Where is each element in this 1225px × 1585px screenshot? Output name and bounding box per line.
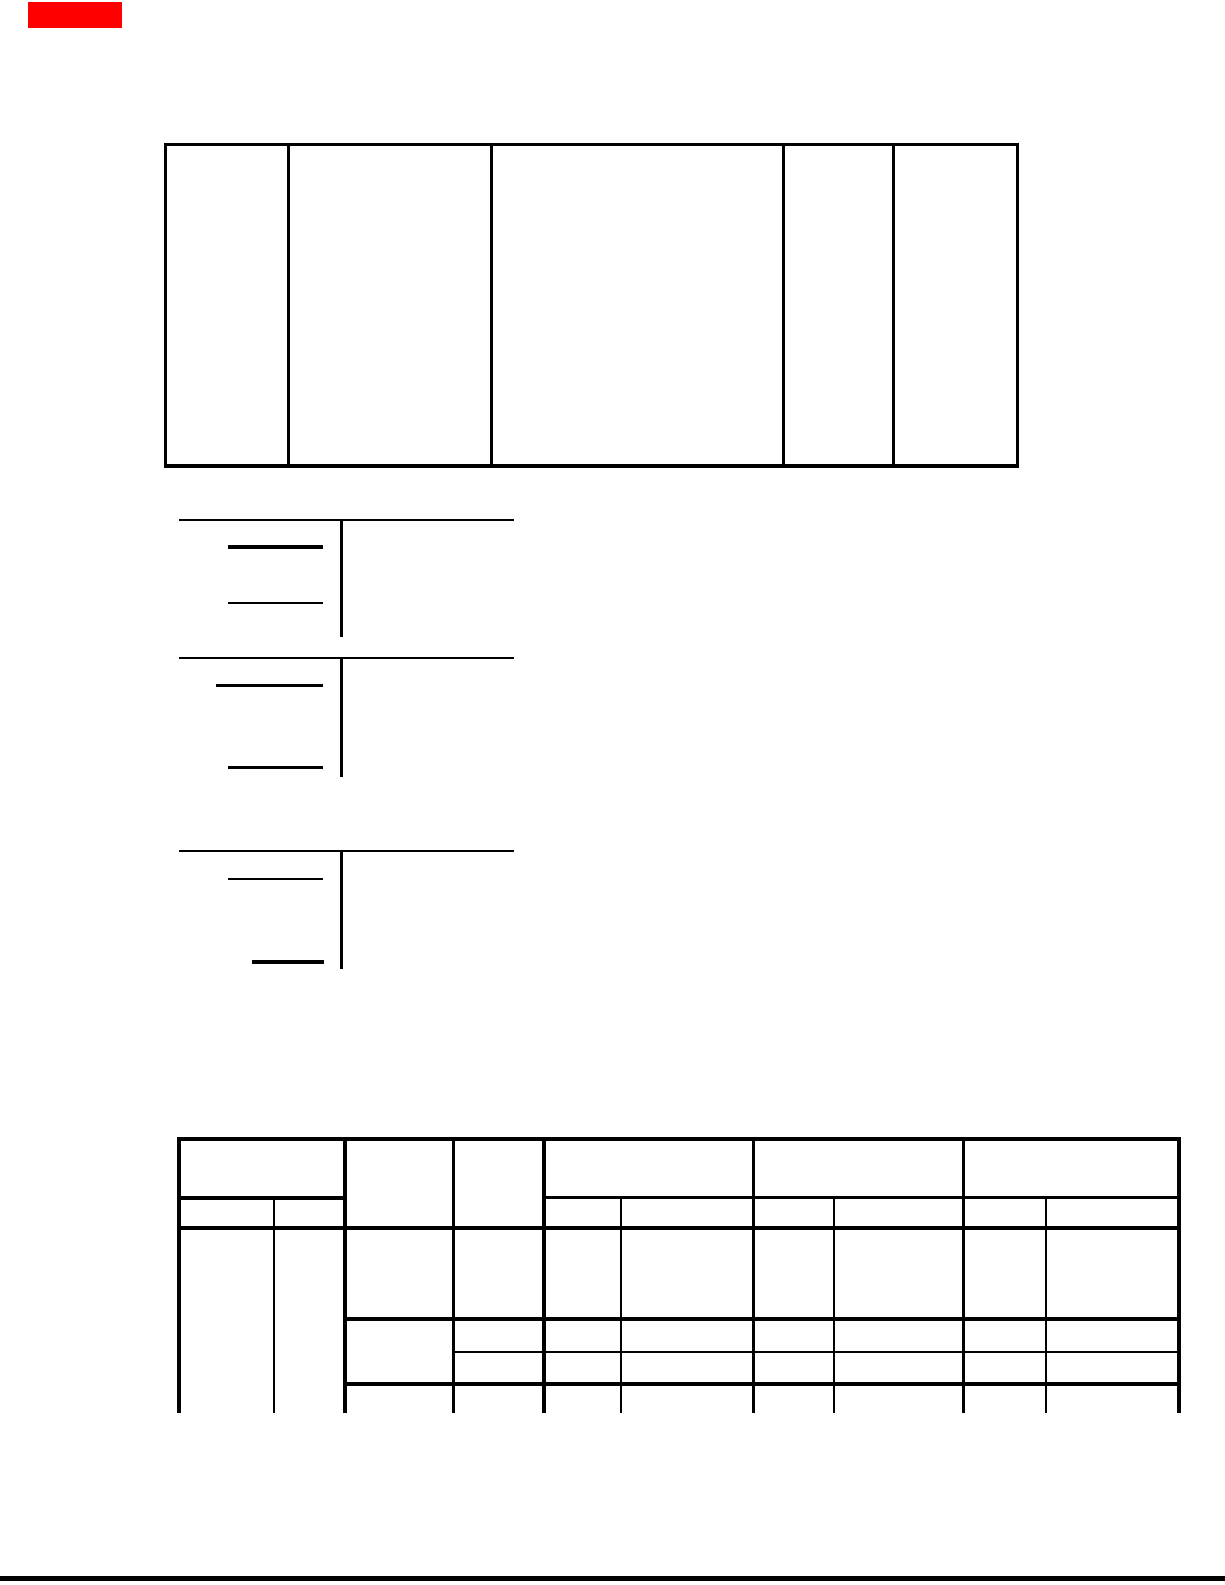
document-page	[0, 0, 1225, 1585]
bottom-table-col3-right-divider	[542, 1137, 546, 1413]
bottom-table-col1-right-divider	[343, 1137, 347, 1413]
formula3-numerator-bar	[228, 878, 323, 880]
formula3-denominator-bar	[252, 960, 324, 964]
top-table-col3-divider	[782, 143, 785, 468]
top-table-bottom-border	[164, 464, 1019, 468]
bottom-table-body-row2-rule-thin	[452, 1351, 1181, 1353]
formula2-numerator-bar	[216, 684, 323, 687]
bottom-table-col6-sub-divider	[1045, 1196, 1047, 1413]
bottom-table-header-bottom-rule	[177, 1226, 1181, 1230]
bottom-table-col5-right-divider	[962, 1137, 965, 1413]
formula1-column-divider	[340, 521, 343, 637]
page-footer-rule	[0, 1576, 1225, 1581]
formula2-denominator-bar	[228, 766, 323, 769]
top-table-right-border	[1016, 143, 1019, 468]
top-table-col2-divider	[490, 143, 493, 468]
formula2-top-rule	[179, 657, 514, 659]
bottom-table-col4-right-divider	[752, 1137, 755, 1413]
formula3-column-divider	[340, 852, 343, 969]
bottom-table-body-row1-rule	[343, 1317, 1181, 1321]
top-table-top-border	[164, 143, 1019, 146]
bottom-table-col5-sub-divider	[833, 1196, 835, 1413]
formula1-numerator-bar	[228, 545, 323, 549]
top-table-col4-divider	[892, 143, 895, 468]
formula1-denominator-bar	[228, 602, 323, 604]
formula2-column-divider	[340, 659, 343, 777]
top-table-left-border	[164, 143, 167, 468]
bottom-table-col4-sub-divider	[620, 1196, 622, 1413]
formula1-top-rule	[179, 519, 514, 521]
bottom-table-subheader-rule-right	[542, 1196, 1181, 1199]
formula3-top-rule	[179, 850, 514, 852]
bottom-table-left-border	[177, 1137, 181, 1413]
bottom-table-col2-right-divider	[452, 1137, 455, 1413]
bottom-table-top-border	[177, 1137, 1181, 1141]
bottom-table-right-border	[1177, 1137, 1181, 1413]
top-table-col1-divider	[287, 143, 290, 468]
bottom-table-subheader-rule-left	[177, 1196, 345, 1200]
bottom-table-col1-sub-divider	[273, 1196, 275, 1413]
red-marker-block	[28, 2, 122, 28]
bottom-table-body-row3-rule	[343, 1382, 1181, 1386]
